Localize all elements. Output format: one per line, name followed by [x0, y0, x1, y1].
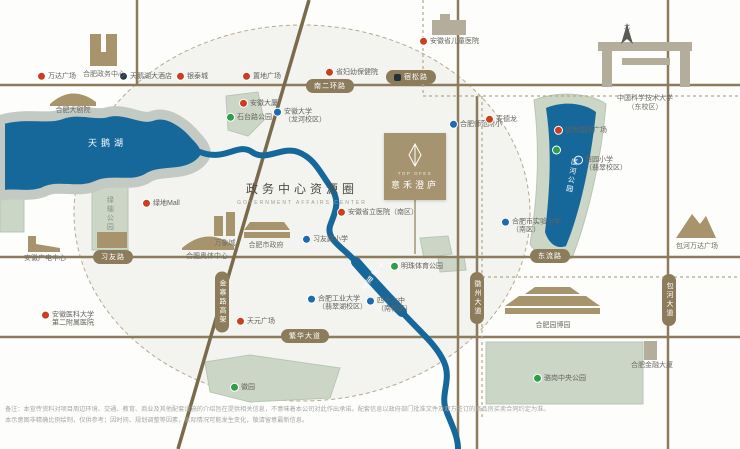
poi-label: 安徽大学 （龙河校区）: [284, 109, 326, 126]
road-label: 南二环路: [306, 79, 354, 93]
poi-park: 骆岗中央公园: [534, 375, 586, 383]
disclaimer-text: 备注：本宣传资料对项目周边环境、交通、教育、商业及其他配套设施的介绍旨在提供相关…: [5, 404, 550, 426]
road-label-text: 南二环路: [314, 81, 346, 91]
museum-icon: [97, 232, 127, 248]
poi-school: 合肥工业大学 （翡翠湖校区）: [308, 296, 367, 313]
leaf-diamond-icon: [407, 143, 423, 167]
poi-label: 合肥工业大学 （翡翠湖校区）: [318, 296, 367, 313]
mall-marker-icon: [338, 209, 345, 216]
mall-marker-icon: [243, 73, 250, 80]
mall-marker-icon: [326, 69, 333, 76]
poi-label: 麦德龙: [496, 116, 517, 124]
park-marker-icon: [534, 375, 541, 382]
park-strip-west: [0, 198, 24, 232]
park-marker-icon: [553, 147, 560, 154]
place-label: 包河万达广场: [676, 243, 718, 252]
ustc-gate-icon: [598, 42, 692, 87]
poi-label: 合肥市实验小学 （南区）: [512, 219, 561, 236]
road-label: 宿松路: [386, 70, 436, 84]
baohe-wanda-icon: [676, 214, 716, 238]
poi-label: 万达广场: [48, 73, 76, 81]
poi-label: 加侨国际广场: [565, 127, 607, 135]
mall-marker-icon: [143, 200, 150, 207]
place-label: 合肥奥体中心: [186, 253, 228, 262]
poi-label: 安徽省儿童医院: [430, 38, 479, 46]
place-label: 合肥金融大厦: [631, 362, 673, 371]
poi-mall: 安徽大厦: [240, 100, 278, 108]
poi-hospital: 安徽省儿童医院: [420, 38, 479, 46]
road-label-text: 金寨路高架: [217, 280, 227, 325]
compass-label: 北: [624, 25, 630, 31]
road-label-text: 东流路: [538, 251, 562, 261]
poi-label: 明珠体育公园: [401, 263, 443, 271]
poi-label: 置地广场: [253, 73, 281, 81]
school-marker-icon: [502, 219, 509, 226]
poi-mall: 安徽省立医院（南区）: [338, 209, 418, 217]
school-marker-icon: [308, 296, 315, 303]
poi-mall: 天元广场: [237, 318, 275, 326]
road-label: 习友路: [93, 250, 133, 264]
road-label: 东流路: [530, 249, 570, 263]
poi-label: 安徽省立医院（南区）: [348, 209, 418, 217]
ring-title: 政务中心资源圈 GOVERNMENT AFFAIRS CENTER: [237, 180, 367, 206]
poi-mall: 置地广场: [243, 73, 281, 81]
park-marker-icon: [391, 263, 398, 270]
place-label: 安徽广电中心: [24, 255, 66, 264]
location-map: 政务中心资源圈 GOVERNMENT AFFAIRS CENTER TOP OF…: [0, 0, 740, 449]
road-label: 繁华大道: [281, 329, 329, 343]
place-label: 合肥市政府: [249, 242, 284, 251]
road-label: 包河大道: [662, 274, 676, 326]
poi-mall: 麦德龙: [486, 116, 517, 124]
poi-label: 安徽大厦: [250, 100, 278, 108]
road-label-text: 宿松路: [404, 72, 428, 82]
poi-label: 习友路小学: [313, 236, 348, 244]
broadcast-center-icon: [28, 236, 60, 252]
poi-label: 天鹅湖大酒店: [130, 73, 172, 81]
hospital-marker-icon: [42, 312, 49, 319]
poi-school: 合肥市实验小学 （南区）: [502, 219, 561, 236]
park-marker-icon: [227, 114, 234, 121]
poi-school: 西园小学 （翡翠校区）: [575, 157, 627, 174]
project-name-zh: 意禾澄庐: [391, 178, 439, 191]
finance-tower-icon: [644, 341, 657, 360]
garden-expo-palace-icon: [505, 287, 600, 314]
sports-park-area: [420, 236, 452, 258]
poi-hospital: 安徽医科大学 第二附属医院: [42, 312, 94, 329]
poi-mall: 加侨国际广场: [555, 127, 607, 135]
mall-marker-icon: [237, 318, 244, 325]
place-label: 万象城: [215, 240, 236, 249]
poi-label: 省妇幼保健院: [336, 69, 378, 77]
resource-circle: [74, 25, 530, 401]
school-marker-icon: [303, 236, 310, 243]
hospital-marker-icon: [420, 38, 427, 45]
poi-park: 明珠体育公园: [391, 263, 443, 271]
childrens-hospital-icon: [432, 14, 466, 35]
place-label: 中国科学技术大学 （东校区）: [617, 95, 673, 113]
road-label-text: 繁华大道: [289, 331, 321, 341]
poi-mall: 银泰城: [177, 73, 208, 81]
mall-marker-icon: [38, 73, 45, 80]
poi-label: 石台路公园: [237, 114, 272, 122]
poi-hotel: 天鹅湖大酒店: [120, 73, 172, 81]
road-label-text: 徽州大道: [472, 280, 482, 316]
poi-label: 绿地Mall: [153, 200, 180, 208]
poi-mall: 万达广场: [38, 73, 76, 81]
poi-school: 习友路小学: [303, 236, 348, 244]
poi-park: [553, 147, 560, 154]
project-name-en: TOP OFES: [398, 171, 433, 176]
road-label-text: 包河大道: [664, 282, 674, 318]
metro-station-icon: [394, 74, 401, 81]
place-label: 合肥大剧院: [56, 107, 91, 116]
grand-theatre-icon: [50, 93, 96, 106]
place-label: 合肥政务中心: [83, 71, 125, 80]
school-marker-icon: [450, 121, 457, 128]
poi-park: 徽园: [231, 384, 255, 392]
mall-marker-icon: [486, 116, 493, 123]
poi-label: 西园小学 （翡翠校区）: [585, 157, 627, 174]
road-label-text: 习友路: [101, 252, 125, 262]
project-logo-box: TOP OFES 意禾澄庐: [384, 133, 446, 200]
water-label: 天鹅湖: [88, 136, 127, 149]
road-label: 金寨路高架: [215, 272, 229, 333]
poi-mall: 省妇幼保健院: [326, 69, 378, 77]
place-label: 合肥园博园: [536, 322, 571, 331]
poi-label: 天元广场: [247, 318, 275, 326]
poi-mall: 绿地Mall: [143, 200, 180, 208]
poi-school: 四十六中 （南校区）: [367, 298, 412, 315]
mall-marker-icon: [240, 100, 247, 107]
place-label: 绿轴公园: [105, 196, 114, 232]
poi-label: 银泰城: [187, 73, 208, 81]
school-marker-icon: [367, 298, 374, 305]
poi-park: 石台路公园: [227, 114, 272, 122]
poi-label: 四十六中 （南校区）: [377, 298, 412, 315]
mall-marker-icon: [177, 73, 184, 80]
city-hall-icon: [244, 222, 290, 238]
poi-label: 骆岗中央公园: [544, 375, 586, 383]
school-marker-icon: [274, 109, 281, 116]
road-label: 徽州大道: [470, 272, 484, 324]
government-towers-icon: [90, 34, 117, 66]
poi-label: 徽园: [241, 384, 255, 392]
compass: 北: [616, 22, 638, 31]
ring-title-zh: 政务中心资源圈: [237, 180, 367, 197]
poi-label: 安徽医科大学 第二附属医院: [52, 312, 94, 329]
poi-school: 安徽大学 （龙河校区）: [274, 109, 326, 126]
mall-marker-icon: [555, 127, 562, 134]
luogang-park-area: [486, 342, 643, 404]
park-marker-icon: [231, 384, 238, 391]
ring-title-en: GOVERNMENT AFFAIRS CENTER: [237, 200, 367, 206]
